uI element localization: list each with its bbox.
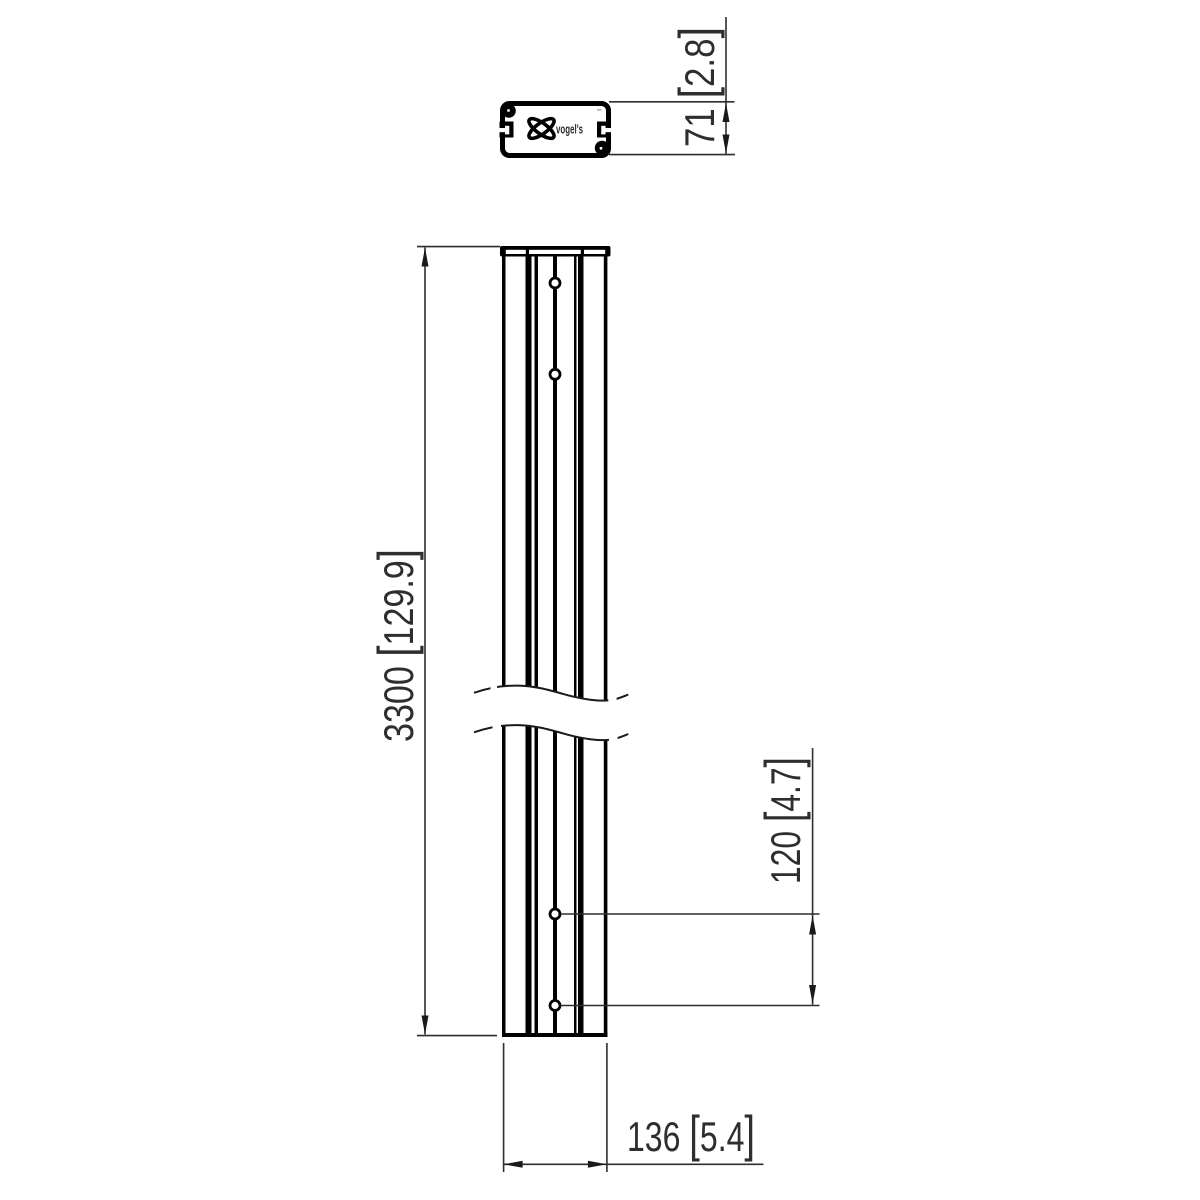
- svg-text:136 [5.4]: 136 [5.4]: [627, 1106, 755, 1162]
- svg-text:3300 [129.9]: 3300 [129.9]: [368, 549, 424, 742]
- svg-text:120 [4.7]: 120 [4.7]: [755, 757, 811, 884]
- svg-text:vogel's: vogel's: [556, 123, 583, 137]
- svg-text:71 [2.8]: 71 [2.8]: [669, 27, 725, 147]
